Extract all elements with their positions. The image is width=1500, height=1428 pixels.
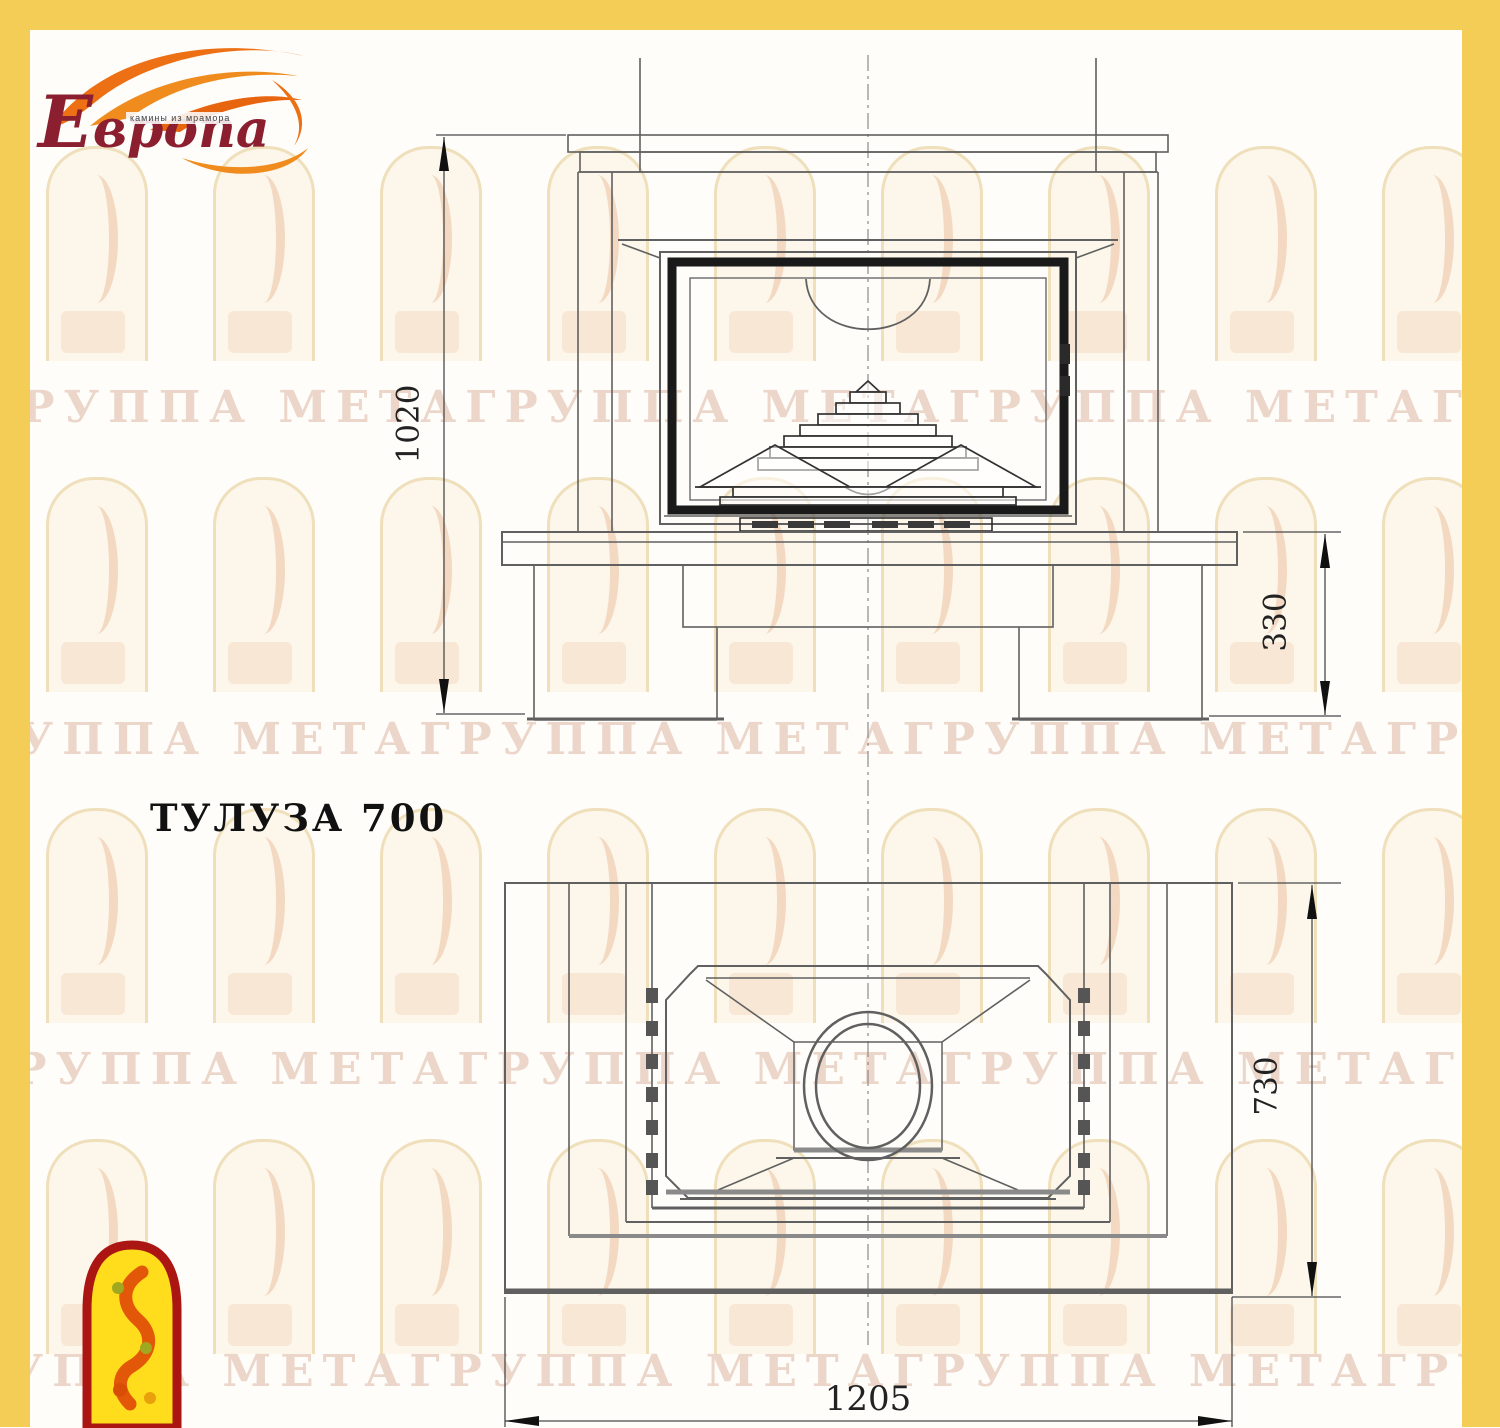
frame-border-left bbox=[0, 0, 30, 1427]
log-pyramid bbox=[695, 381, 1041, 505]
dim-label-total-height: 1020 bbox=[391, 385, 427, 464]
dim-label-total-width: 1205 bbox=[825, 1379, 912, 1419]
frame-border-right bbox=[1462, 30, 1500, 1427]
brand-logo: Европа камины из мрамора bbox=[32, 28, 322, 208]
catalog-page: ГРУППА МЕТАГРУППА МЕТАГРУППА МЕТАГРУППА … bbox=[0, 0, 1500, 1427]
firebird-arch-icon bbox=[80, 1238, 184, 1428]
dim-label-base-height: 330 bbox=[1258, 592, 1294, 651]
frame-border-top bbox=[0, 0, 1500, 30]
technical-drawing: 1020 330 730 1205 bbox=[0, 0, 1500, 1427]
pedestal-right bbox=[1012, 565, 1209, 720]
plan-view bbox=[505, 883, 1232, 1293]
pedestal-left bbox=[527, 565, 724, 720]
brand-tagline: камины из мрамора bbox=[126, 112, 234, 124]
dim-label-depth: 730 bbox=[1249, 1056, 1285, 1115]
model-title: ТУЛУЗА 700 bbox=[150, 796, 447, 840]
dimensions bbox=[436, 135, 1341, 1427]
